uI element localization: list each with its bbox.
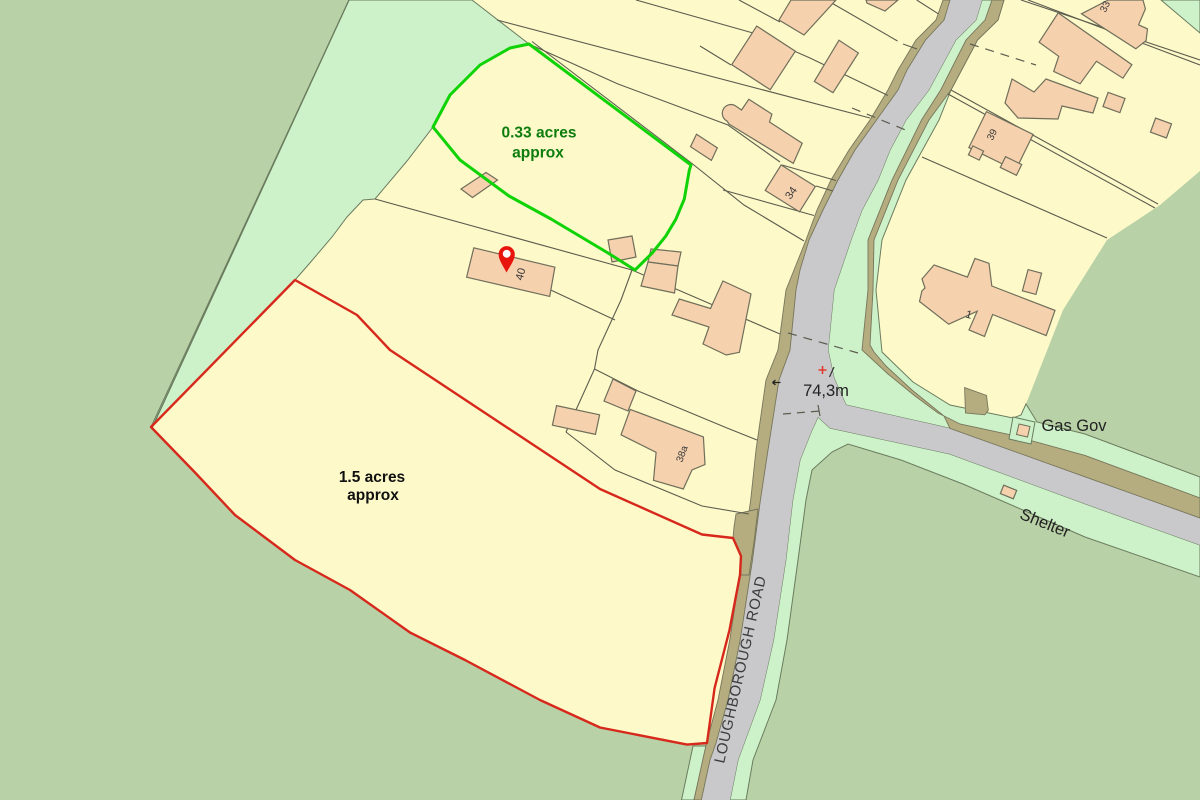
svg-text:approx: approx <box>347 487 399 504</box>
svg-text:0.33 acres: 0.33 acres <box>502 125 577 142</box>
svg-text:1.5 acres: 1.5 acres <box>339 469 405 486</box>
svg-text:74,3m: 74,3m <box>803 382 849 400</box>
svg-text:approx: approx <box>512 145 564 162</box>
svg-text:Gas Gov: Gas Gov <box>1041 417 1107 435</box>
